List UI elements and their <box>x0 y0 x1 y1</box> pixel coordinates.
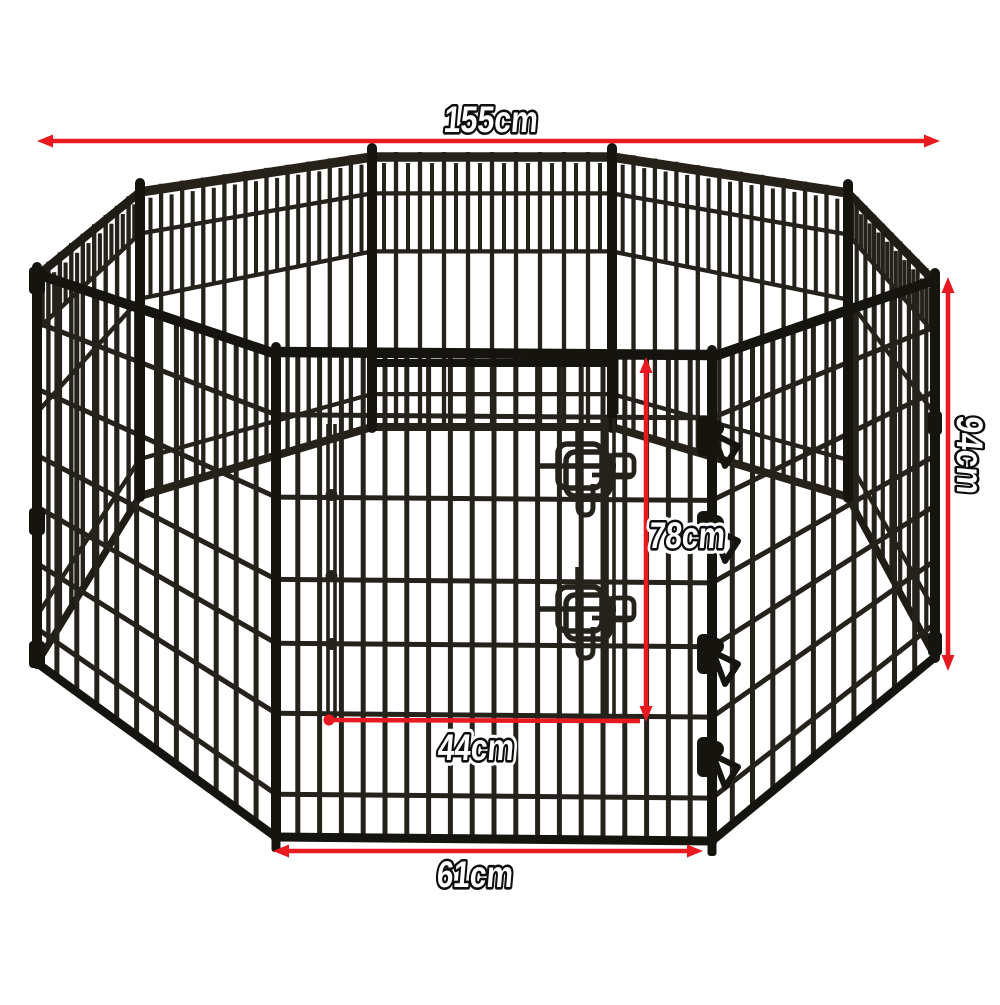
svg-text:155cm: 155cm <box>442 98 540 140</box>
svg-text:78cm: 78cm <box>647 514 727 556</box>
svg-text:61cm: 61cm <box>435 853 515 895</box>
svg-text:94cm: 94cm <box>949 414 991 496</box>
svg-text:44cm: 44cm <box>436 726 516 768</box>
